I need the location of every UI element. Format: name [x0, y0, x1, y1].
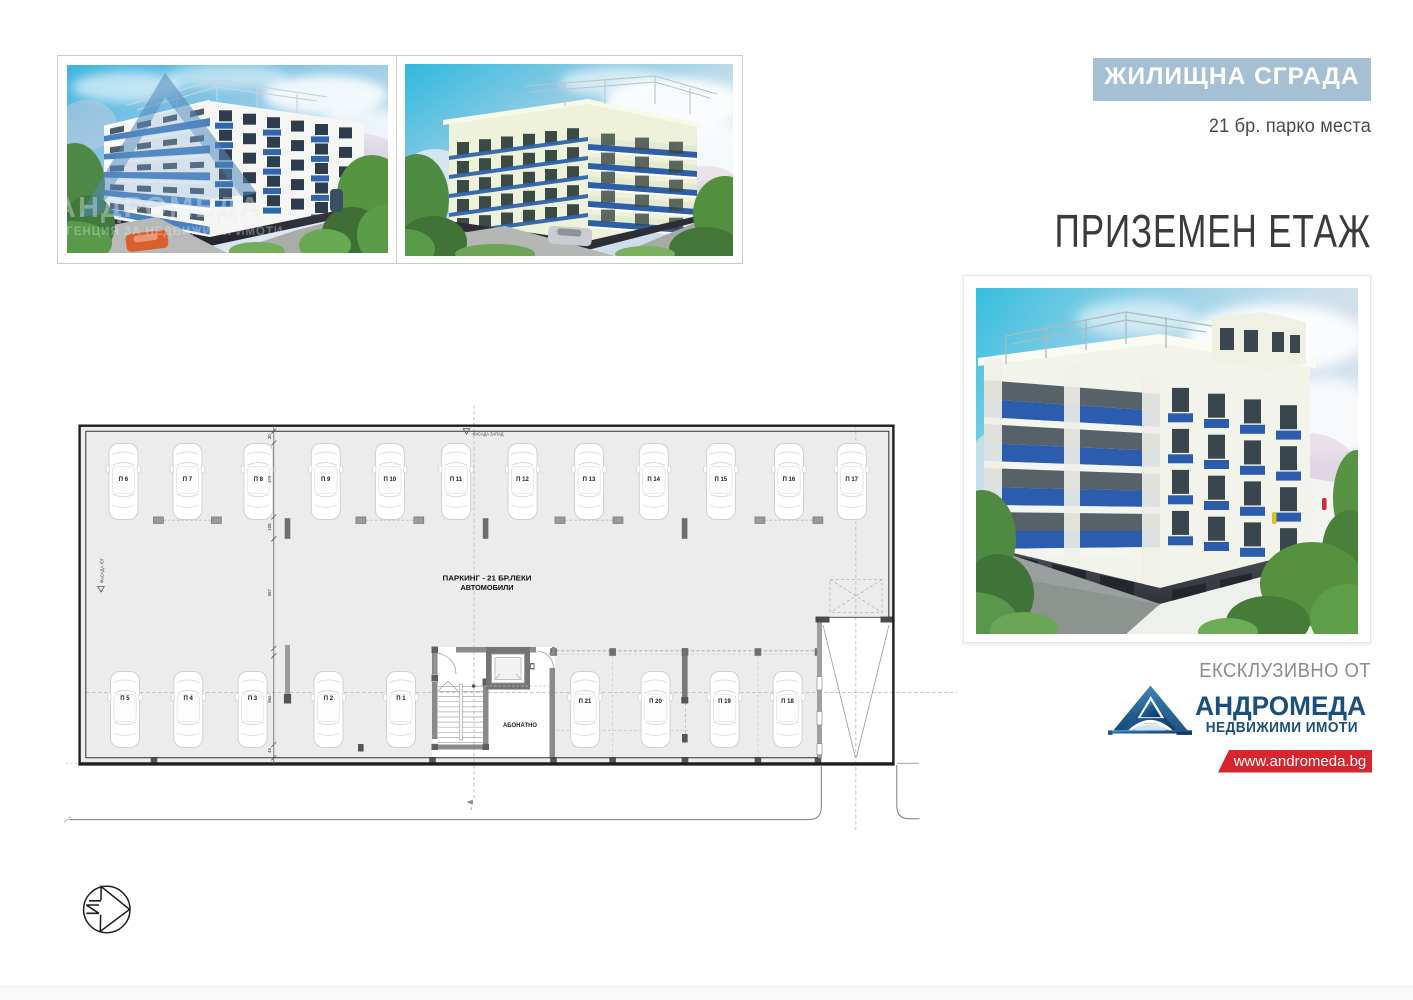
svg-text:АБОНАТНО: АБОНАТНО [503, 722, 537, 729]
svg-text:П 19: П 19 [718, 699, 731, 705]
svg-text:П 20: П 20 [649, 699, 662, 705]
svg-text:АНДРОМЕДА: АНДРОМЕДА [67, 192, 262, 224]
svg-text:П 10: П 10 [383, 477, 396, 483]
svg-text:ФАСАДА ЮГ: ФАСАДА ЮГ [100, 558, 106, 583]
svg-text:П 14: П 14 [647, 477, 660, 483]
svg-text:П 8: П 8 [254, 477, 264, 483]
svg-text:П 1: П 1 [396, 696, 406, 702]
svg-text:П 5: П 5 [120, 696, 130, 702]
svg-text:П 13: П 13 [583, 477, 596, 483]
svg-text:П 21: П 21 [579, 699, 592, 705]
svg-text:П 12: П 12 [516, 477, 529, 483]
svg-text:ФАСАДА ЗАПАД: ФАСАДА ЗАПАД [473, 431, 505, 437]
svg-text:562: 562 [267, 695, 272, 703]
svg-text:www.andromeda.bg: www.andromeda.bg [1233, 753, 1367, 770]
svg-text:108: 108 [267, 523, 272, 531]
svg-text:П 9: П 9 [321, 477, 331, 483]
svg-text:П 3: П 3 [248, 696, 258, 702]
svg-text:45: 45 [267, 748, 272, 753]
svg-text:П 2: П 2 [324, 696, 334, 702]
svg-text:П 11: П 11 [450, 477, 463, 483]
svg-text:П 7: П 7 [183, 477, 193, 483]
svg-text:30: 30 [267, 434, 272, 439]
svg-text:П 18: П 18 [781, 699, 794, 705]
svg-text:П 16: П 16 [783, 477, 796, 483]
svg-text:3: 3 [470, 806, 473, 811]
svg-text:П 4: П 4 [184, 696, 194, 702]
svg-text:АВТОМОБИЛИ: АВТОМОБИЛИ [461, 583, 514, 592]
svg-text:ПАРКИНГ - 21 БР.ЛЕКИ: ПАРКИНГ - 21 БР.ЛЕКИ [443, 574, 532, 583]
svg-text:479: 479 [267, 475, 272, 483]
svg-text:П 15: П 15 [714, 477, 727, 483]
svg-text:П 17: П 17 [845, 477, 858, 483]
svg-text:587: 587 [267, 589, 272, 597]
svg-text:П 6: П 6 [119, 477, 129, 483]
svg-text:АГЕНЦИЯ ЗА НЕДВИЖИМИ ИМОТИ: АГЕНЦИЯ ЗА НЕДВИЖИМИ ИМОТИ [67, 226, 283, 238]
